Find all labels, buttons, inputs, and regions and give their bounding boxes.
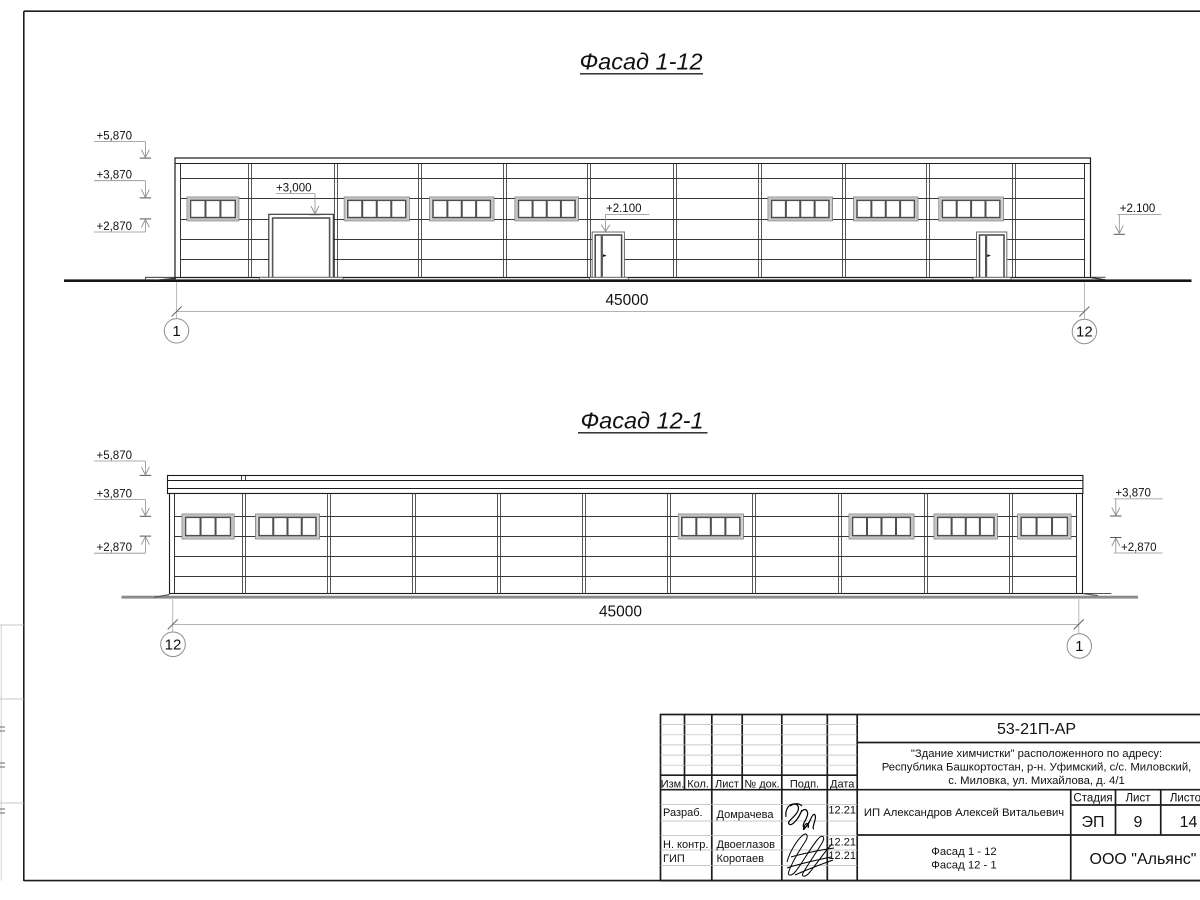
svg-text:с. Миловка, ул. Михайлова, д.: с. Миловка, ул. Михайлова, д. 4/1 [948,775,1125,787]
svg-text:Фасад 1-12: Фасад 1-12 [579,49,702,75]
svg-text:1: 1 [1075,638,1083,655]
svg-text:Стадия: Стадия [1073,793,1112,805]
svg-text:Коротаев: Коротаев [717,853,765,865]
svg-text:Республика Башкортостан, р-н.: Республика Башкортостан, р-н. Уфимский, … [882,762,1192,774]
svg-text:+2,870: +2,870 [97,221,133,233]
svg-text:+3,870: +3,870 [97,170,133,182]
svg-text:+2.100: +2.100 [1120,203,1156,215]
svg-text:53-21П-АР: 53-21П-АР [997,721,1076,738]
svg-text:Подп.: Подп. [790,778,819,790]
svg-text:12.21: 12.21 [828,805,856,817]
svg-text:Кол.: Кол. [687,778,709,790]
svg-text:9: 9 [1134,814,1143,831]
svg-text:+3,000: +3,000 [276,182,312,194]
svg-text:ЭП: ЭП [1082,814,1105,831]
svg-text:Лист: Лист [715,778,739,790]
svg-text:14: 14 [1180,814,1198,831]
svg-text:+3,870: +3,870 [97,488,133,500]
svg-text:Двоеглазов: Двоеглазов [717,839,776,851]
svg-text:12: 12 [1076,324,1093,341]
svg-text:№ док.: № док. [744,778,779,790]
svg-text:Н. контр.: Н. контр. [663,839,708,851]
svg-text:ГИП: ГИП [663,853,685,865]
svg-text:ООО "Альянс": ООО "Альянс" [1090,851,1197,868]
svg-text:Фасад 12 - 1: Фасад 12 - 1 [931,860,996,872]
svg-text:Фасад 12-1: Фасад 12-1 [580,408,703,434]
svg-text:Изм.: Изм. [661,778,685,790]
svg-text:45000: 45000 [605,292,648,309]
svg-text:+2.100: +2.100 [606,203,642,215]
svg-text:1: 1 [172,323,180,340]
svg-text:+2,870: +2,870 [97,542,133,554]
svg-text:ИП Александров Алексей Виталье: ИП Александров Алексей Витальевич [864,807,1064,819]
svg-text:+5,870: +5,870 [97,130,133,142]
svg-text:12.21: 12.21 [828,837,856,849]
svg-text:"Здание химчистки" расположенн: "Здание химчистки" расположенного по адр… [911,748,1162,760]
svg-text:Разраб.: Разраб. [663,807,703,819]
svg-text:Дата: Дата [830,778,855,790]
svg-text:+2,870: +2,870 [1121,542,1157,554]
svg-text:+3,870: +3,870 [1115,488,1151,500]
svg-text:Фасад 1 - 12: Фасад 1 - 12 [931,846,996,858]
svg-text:Листов: Листов [1170,793,1200,805]
svg-text:12: 12 [165,637,182,654]
svg-text:45000: 45000 [599,603,642,620]
svg-text:+5,870: +5,870 [97,450,133,462]
svg-text:Лист: Лист [1126,793,1152,805]
svg-text:Домрачева: Домрачева [717,809,775,821]
